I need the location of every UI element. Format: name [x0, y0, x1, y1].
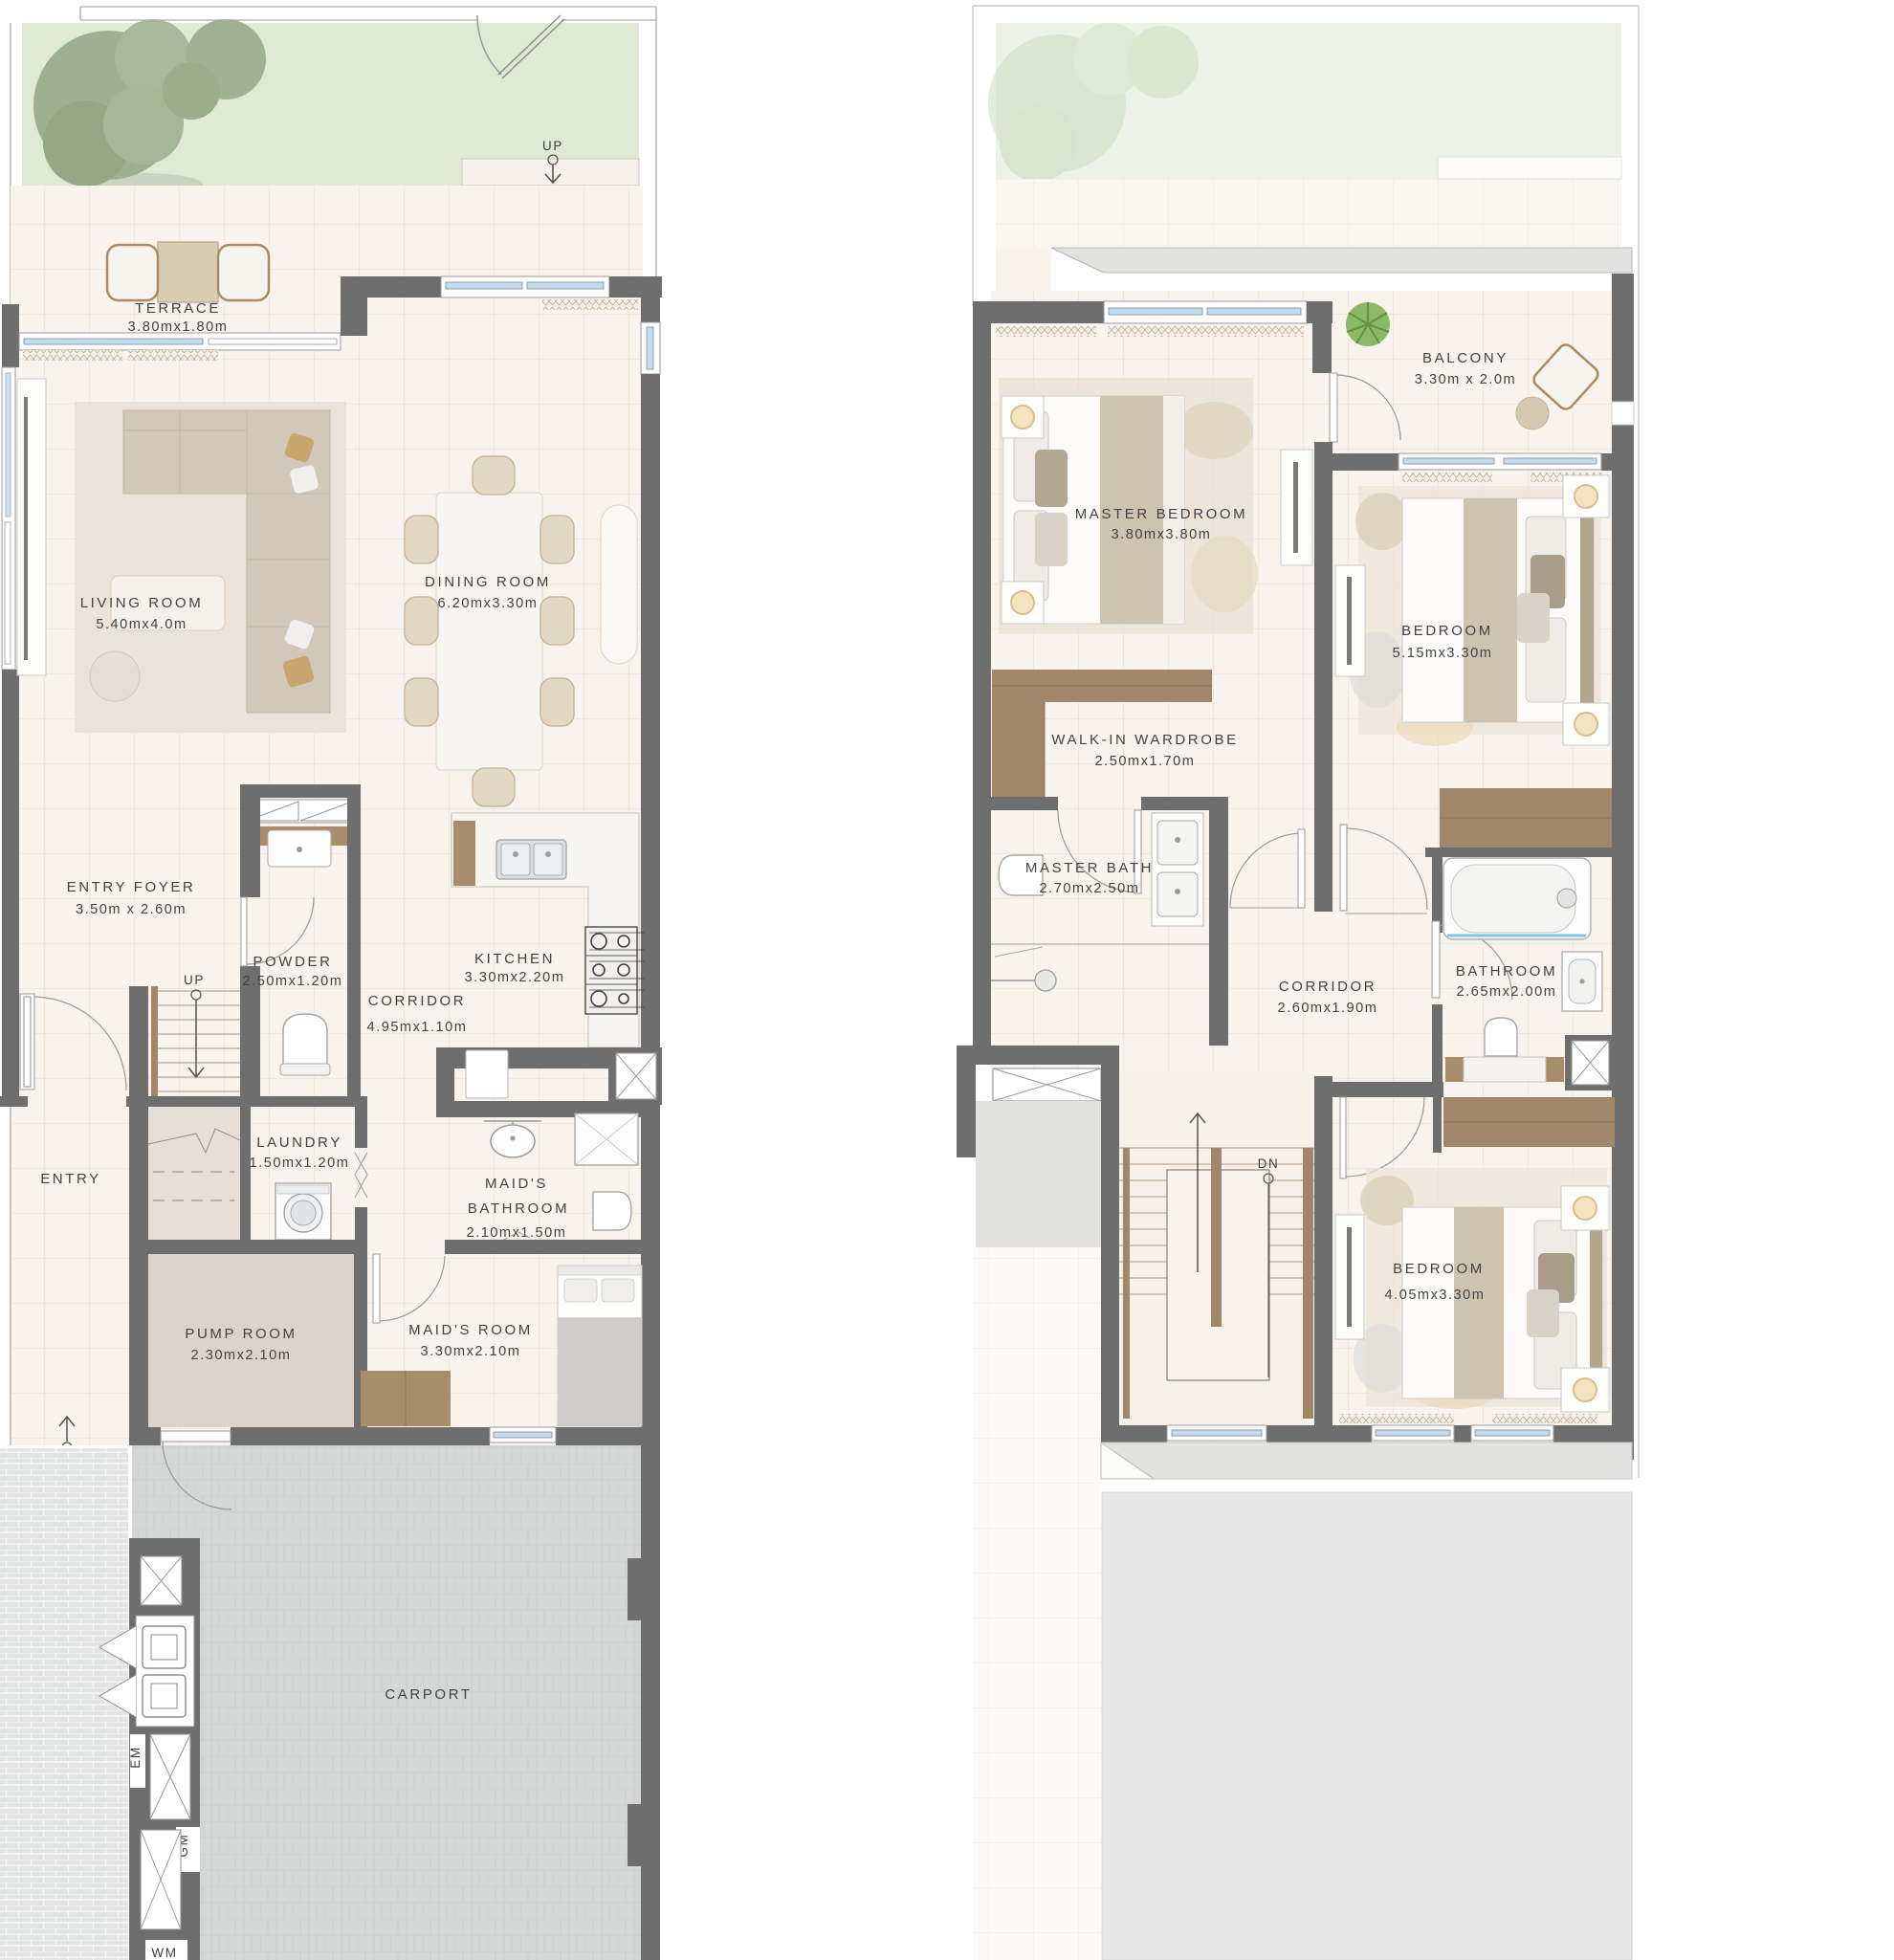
svg-text:PUMP ROOM: PUMP ROOM — [185, 1326, 297, 1342]
svg-text:LAUNDRY: LAUNDRY — [256, 1134, 342, 1151]
svg-text:5.15mx3.30m: 5.15mx3.30m — [1393, 646, 1493, 661]
svg-text:UP: UP — [184, 973, 205, 987]
svg-text:CORRIDOR: CORRIDOR — [1279, 979, 1376, 995]
svg-text:3.30mx2.20m: 3.30mx2.20m — [465, 970, 565, 985]
svg-text:MASTER BEDROOM: MASTER BEDROOM — [1075, 506, 1248, 522]
svg-text:MAID'S: MAID'S — [485, 1176, 548, 1192]
svg-text:WALK-IN WARDROBE: WALK-IN WARDROBE — [1051, 732, 1239, 748]
svg-text:2.10mx1.50m: 2.10mx1.50m — [467, 1225, 567, 1241]
svg-text:5.40mx4.0m: 5.40mx4.0m — [96, 617, 187, 632]
svg-text:BEDROOM: BEDROOM — [1401, 623, 1493, 639]
svg-text:2.70mx2.50m: 2.70mx2.50m — [1040, 881, 1140, 896]
svg-text:3.30mx2.10m: 3.30mx2.10m — [421, 1344, 521, 1359]
svg-text:TERRACE: TERRACE — [135, 300, 221, 317]
svg-text:BALCONY: BALCONY — [1422, 350, 1509, 366]
svg-text:2.65mx2.00m: 2.65mx2.00m — [1457, 984, 1557, 1000]
svg-text:CARPORT: CARPORT — [385, 1686, 472, 1703]
svg-text:BATHROOM: BATHROOM — [1456, 963, 1557, 980]
svg-text:2.50mx1.20m: 2.50mx1.20m — [243, 974, 343, 989]
svg-text:4.95mx1.10m: 4.95mx1.10m — [367, 1020, 468, 1035]
svg-text:DINING ROOM: DINING ROOM — [425, 574, 551, 590]
svg-text:DN: DN — [1258, 1156, 1280, 1171]
svg-text:2.60mx1.90m: 2.60mx1.90m — [1278, 1001, 1378, 1016]
svg-text:6.20mx3.30m: 6.20mx3.30m — [438, 596, 539, 611]
svg-text:1.50mx1.20m: 1.50mx1.20m — [250, 1156, 350, 1171]
svg-text:ENTRY FOYER: ENTRY FOYER — [67, 879, 196, 895]
svg-text:3.30m x 2.0m: 3.30m x 2.0m — [1415, 372, 1516, 387]
svg-text:WM: WM — [151, 1946, 177, 1960]
svg-text:KITCHEN: KITCHEN — [474, 951, 555, 967]
svg-text:2.30mx2.10m: 2.30mx2.10m — [191, 1348, 292, 1363]
svg-text:3.80mx3.80m: 3.80mx3.80m — [1112, 527, 1212, 542]
svg-text:2.50mx1.70m: 2.50mx1.70m — [1095, 754, 1196, 769]
svg-text:POWDER: POWDER — [253, 954, 332, 970]
svg-text:BATHROOM: BATHROOM — [468, 1200, 569, 1217]
svg-text:MAID'S ROOM: MAID'S ROOM — [408, 1322, 533, 1338]
svg-text:EM: EM — [128, 1746, 143, 1768]
svg-text:CORRIDOR: CORRIDOR — [368, 993, 466, 1009]
svg-text:UP: UP — [542, 139, 563, 153]
svg-text:3.50m x 2.60m: 3.50m x 2.60m — [76, 902, 187, 917]
svg-text:BEDROOM: BEDROOM — [1393, 1261, 1485, 1277]
svg-text:4.05mx3.30m: 4.05mx3.30m — [1385, 1288, 1486, 1303]
svg-text:ENTRY: ENTRY — [40, 1171, 101, 1187]
svg-text:MASTER BATH: MASTER BATH — [1025, 860, 1154, 876]
svg-text:LIVING ROOM: LIVING ROOM — [80, 595, 204, 611]
